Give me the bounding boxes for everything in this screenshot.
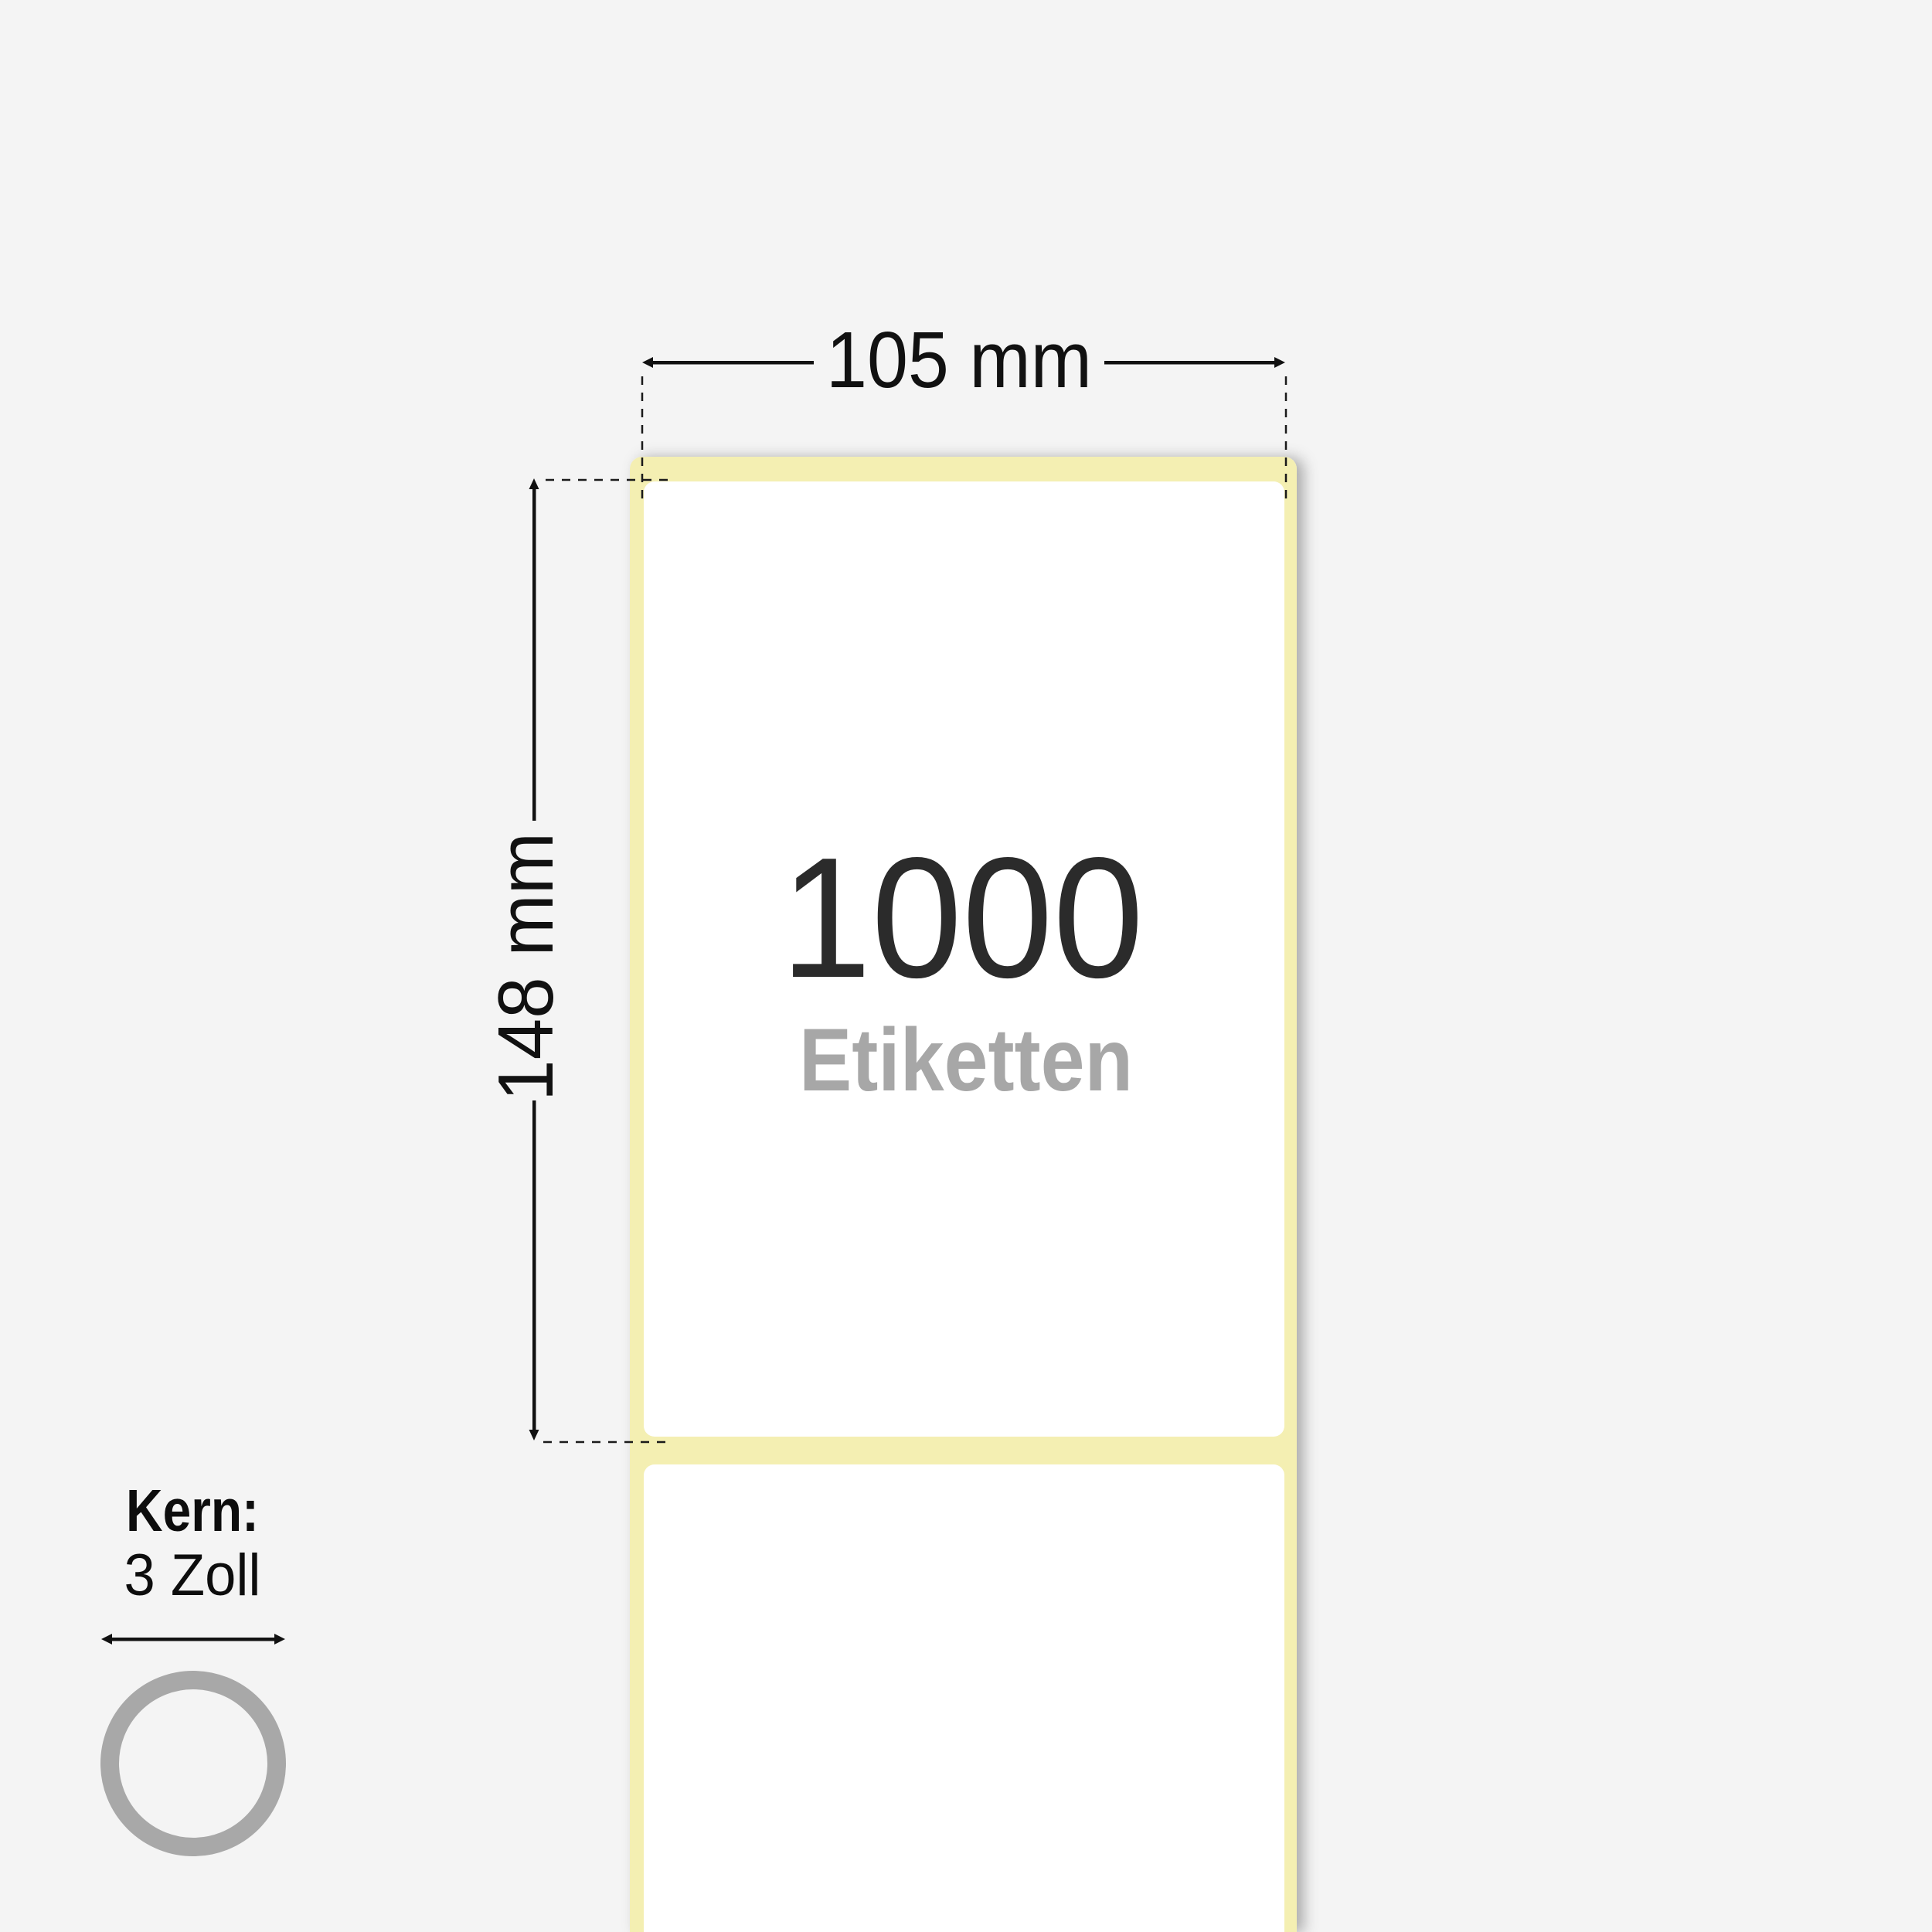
- svg-text:148 mm: 148 mm: [483, 832, 570, 1101]
- svg-text:1000: 1000: [781, 822, 1144, 1014]
- svg-text:Etiketten: Etiketten: [799, 1011, 1133, 1110]
- svg-text:105 mm: 105 mm: [826, 315, 1092, 404]
- svg-text:Kern:: Kern:: [126, 1478, 259, 1544]
- svg-text:3 Zoll: 3 Zoll: [124, 1543, 261, 1608]
